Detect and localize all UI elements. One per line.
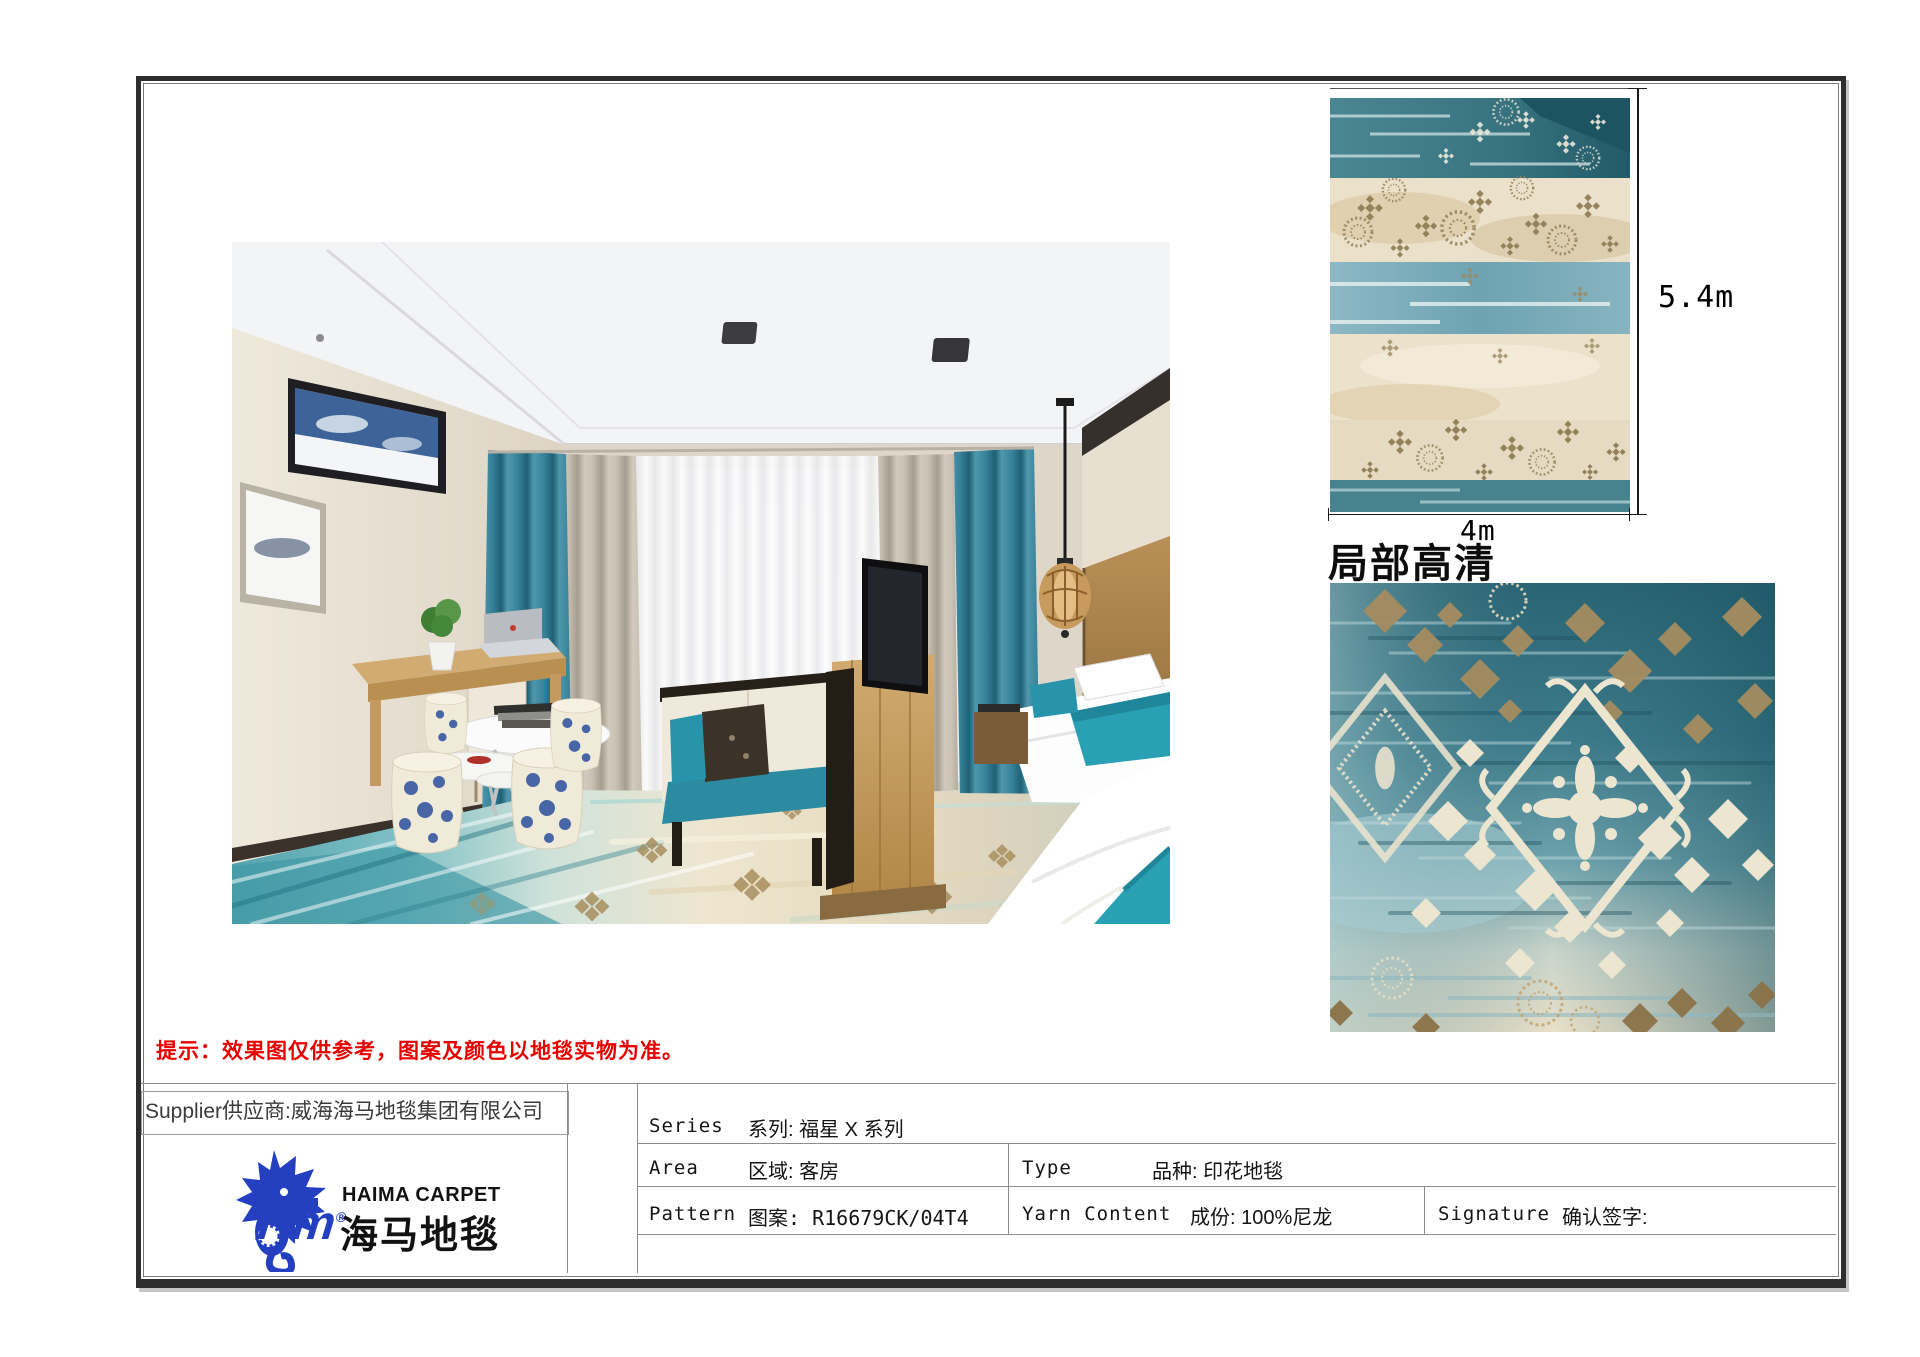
- brand-name-zh: 海马地毯: [340, 1204, 500, 1259]
- rug-height-label: 5.4m: [1658, 280, 1734, 315]
- yarn-content-label: Yarn Content: [1022, 1203, 1171, 1225]
- dim-extension-line-top: [1330, 88, 1646, 89]
- carpet-swatch-full-image: [1330, 98, 1630, 512]
- table-top-line: [141, 1083, 1836, 1084]
- table-hline-pattern: [637, 1234, 1836, 1235]
- signature-value: 确认签字:: [1562, 1201, 1648, 1230]
- dim-tick-left: [1328, 508, 1329, 521]
- type-label: Type: [1022, 1157, 1072, 1179]
- supplier-line: Supplier供应商:威海海马地毯集团有限公司: [142, 1092, 568, 1132]
- pattern-label: Pattern: [649, 1203, 736, 1225]
- spec-sheet-page: 5.4m 4m 局部高清: [0, 0, 1920, 1357]
- supplier-box: Supplier供应商:威海海马地毯集团有限公司: [141, 1091, 569, 1135]
- brand-monogram: Hm®: [255, 1196, 348, 1251]
- area-label: Area: [649, 1157, 699, 1179]
- carpet-swatch-detail-image: [1330, 583, 1775, 1032]
- disclaimer-notice: 提示：效果图仅供参考，图案及颜色以地毯实物为准。: [156, 1035, 684, 1065]
- area-value: 区域: 客房: [748, 1155, 839, 1184]
- detail-section-title: 局部高清: [1328, 531, 1496, 589]
- table-vline-main: [637, 1083, 638, 1273]
- table-vline-signature: [1424, 1186, 1425, 1234]
- signature-label: Signature: [1438, 1203, 1550, 1225]
- pattern-value: 图案: R16679CK/04T4: [748, 1202, 969, 1231]
- table-hline-area: [637, 1186, 1836, 1187]
- dim-tick-right: [1629, 508, 1630, 521]
- table-hline-series: [637, 1143, 1836, 1144]
- room-rendering-image: [232, 242, 1170, 924]
- yarn-content-value: 成份: 100%尼龙: [1190, 1201, 1332, 1230]
- table-vline-type: [1008, 1143, 1009, 1234]
- type-value: 品种: 印花地毯: [1152, 1155, 1283, 1184]
- series-value: 系列: 福星 X 系列: [748, 1113, 904, 1142]
- table-vline-left-col: [567, 1083, 568, 1273]
- series-label: Series: [649, 1115, 724, 1137]
- dim-tick-top: [1628, 88, 1647, 89]
- dim-line-height: [1637, 88, 1639, 515]
- dim-tick-bottom: [1628, 514, 1647, 515]
